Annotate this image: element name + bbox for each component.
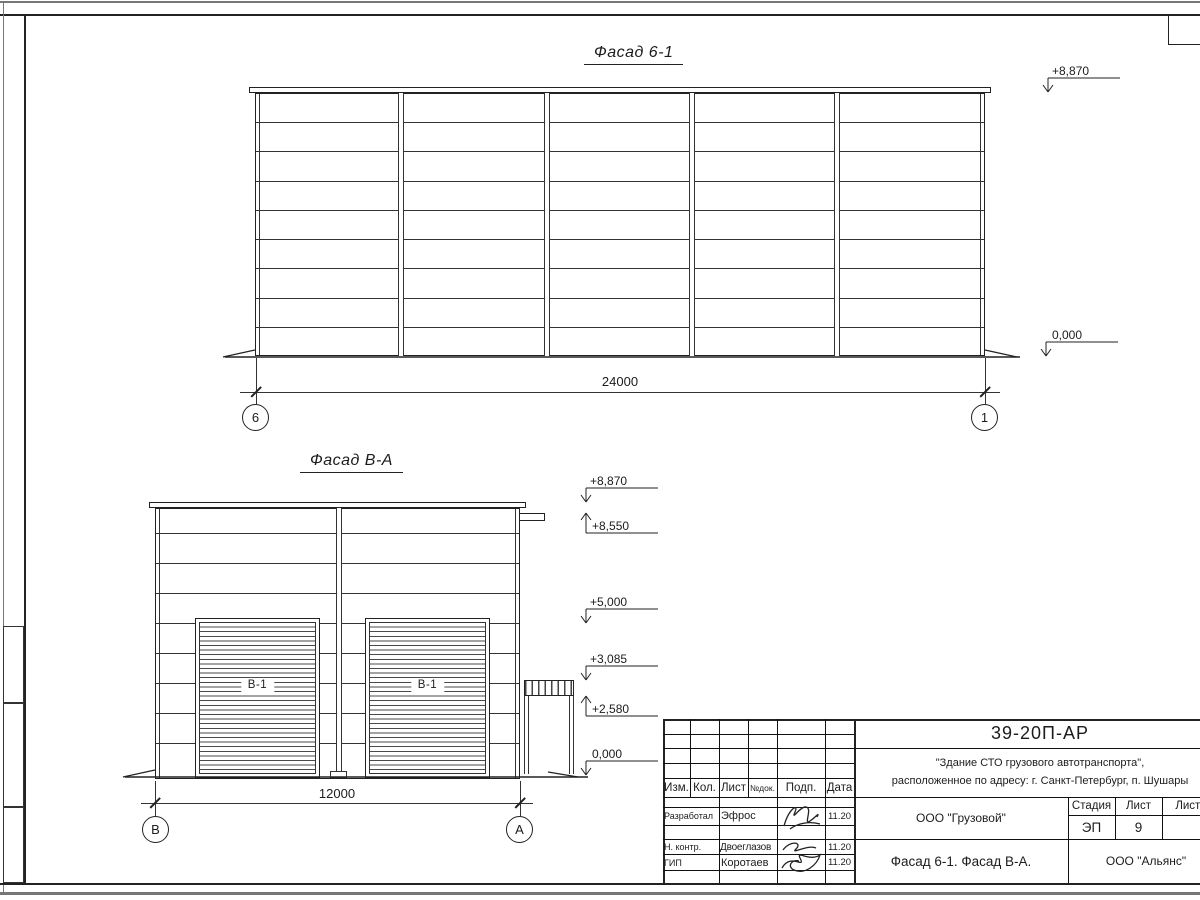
roller-door-slats <box>199 622 316 774</box>
door-label: В-1 <box>241 678 274 692</box>
margin-box-1 <box>3 626 24 703</box>
roller-door-2: В-1 <box>365 618 490 778</box>
level-mark-8550: +8,550 <box>572 511 662 537</box>
panel-line <box>256 239 984 240</box>
sheet-title: Фасад 6-1. Фасад В-А. <box>856 840 1066 882</box>
sheets-label: Листов <box>1163 798 1200 814</box>
axis-bubble-a: А <box>506 816 533 843</box>
porch-post <box>524 696 525 774</box>
mullion <box>689 93 695 356</box>
level-mark-5000: +5,000 <box>572 595 662 625</box>
frame-bottom <box>0 883 1200 885</box>
project-line-1: "Здание СТО грузового автотранспорта", <box>936 755 1145 772</box>
tb-header-ndok: №док. <box>748 779 777 796</box>
facade-top-title: Фасад 6-1 <box>584 44 683 65</box>
role-ncontrol: Н. контр. <box>664 840 719 854</box>
mullion <box>398 93 404 356</box>
project-description: "Здание СТО грузового автотранспорта", р… <box>858 750 1200 795</box>
extension-line <box>985 358 986 404</box>
roller-door-1: В-1 <box>195 618 320 778</box>
level-mark-2580: +2,580 <box>572 694 662 720</box>
sheet-edge-top <box>0 1 1200 3</box>
level-mark-3085: +3,085 <box>572 652 662 682</box>
axis-label: 1 <box>981 410 988 425</box>
company-name: ООО "Альянс" <box>1069 840 1200 882</box>
porch-canopy <box>524 680 574 696</box>
mullion <box>544 93 550 356</box>
dimension-line <box>141 803 533 804</box>
axis-label: А <box>515 822 524 837</box>
facade-top-body <box>255 93 985 356</box>
sheet-label: Лист <box>1116 798 1161 814</box>
tb-header-podp: Подп. <box>777 779 825 796</box>
role-developer: Разработал <box>664 808 719 824</box>
mullion <box>336 508 342 771</box>
tb-header-izm: Изм. <box>663 779 690 796</box>
signature <box>780 799 824 833</box>
facade-top-inner-edge-right <box>980 94 981 355</box>
panel-line <box>256 298 984 299</box>
svg-text:+8,870: +8,870 <box>590 474 627 488</box>
facade-top-parapet-cap <box>249 87 991 93</box>
panel-line <box>256 210 984 211</box>
panel-line <box>256 151 984 152</box>
ground-line-top-facade <box>205 348 1035 364</box>
sheet-edge-bottom <box>0 892 1200 895</box>
level-mark-zero: 0,000 <box>1032 328 1122 358</box>
dimension-text: 24000 <box>560 374 680 389</box>
facade-side-inner-edge-left <box>159 509 160 778</box>
extension-line <box>155 781 156 816</box>
svg-text:+3,085: +3,085 <box>590 652 627 666</box>
dimension-line <box>240 392 1000 393</box>
corner-reference-box <box>1168 16 1200 45</box>
tb-line <box>663 748 1200 749</box>
date-gip: 11.20 <box>825 855 854 870</box>
stage-value: ЭП <box>1069 816 1114 838</box>
roller-door-slats <box>369 622 486 774</box>
axis-bubble-v: В <box>142 816 169 843</box>
facade-side-title: Фасад В-А <box>300 452 403 473</box>
mullion <box>834 93 840 356</box>
extension-line <box>256 358 257 404</box>
svg-text:+5,000: +5,000 <box>590 595 627 609</box>
panel-line <box>256 122 984 123</box>
panel-line <box>256 181 984 182</box>
axis-label: В <box>151 822 160 837</box>
name-developer: Эфрос <box>721 808 776 824</box>
frame-top <box>0 14 1200 16</box>
role-gip: ГИП <box>664 855 719 870</box>
ground-line-side-facade <box>100 768 600 784</box>
facade-top-inner-edge-left <box>259 94 260 355</box>
svg-text:0,000: 0,000 <box>1052 328 1082 342</box>
dimension-text: 12000 <box>277 786 397 801</box>
panel-line <box>256 327 984 328</box>
svg-text:+8,870: +8,870 <box>1052 64 1089 78</box>
door-label: В-1 <box>411 678 444 692</box>
document-code: 39-20П-АР <box>856 721 1200 746</box>
axis-bubble-6: 6 <box>242 404 269 431</box>
date-ncontrol: 11.20 <box>825 840 854 854</box>
axis-bubble-1: 1 <box>971 404 998 431</box>
name-ncontrol: Двоеглазов <box>720 840 777 854</box>
level-mark-zero-side: 0,000 <box>572 747 662 777</box>
porch-post <box>528 696 529 774</box>
svg-text:+2,580: +2,580 <box>592 702 629 716</box>
svg-text:+8,550: +8,550 <box>592 519 629 533</box>
axis-label: 6 <box>252 410 259 425</box>
level-mark-8870: +8,870 <box>572 474 662 504</box>
level-mark-top: +8,870 <box>1034 64 1124 94</box>
facade-side-inner-edge-right <box>515 509 516 778</box>
stage-label: Стадия <box>1069 798 1114 814</box>
drain-pipe <box>519 513 545 521</box>
sheet-number: 9 <box>1116 816 1161 838</box>
project-line-2: расположенное по адресу: г. Санкт-Петерб… <box>892 773 1188 790</box>
frame-left <box>24 14 26 883</box>
tb-header-data: Дата <box>825 779 854 796</box>
client-name: ООО "Грузовой" <box>856 799 1066 837</box>
date-developer: 11.20 <box>825 808 854 824</box>
margin-box-2 <box>3 703 24 807</box>
tb-line <box>719 719 720 883</box>
tb-header-kol: Кол. <box>690 779 719 796</box>
margin-box-3 <box>3 807 24 883</box>
name-gip: Коротаев <box>721 855 776 870</box>
extension-line <box>520 781 521 816</box>
tb-header-list: Лист <box>719 779 748 796</box>
signature <box>777 837 825 877</box>
panel-line <box>256 268 984 269</box>
porch-post <box>569 696 570 774</box>
drawing-sheet: Фасад 6-1 +8,870 0,000 24000 6 <box>0 0 1200 900</box>
svg-text:0,000: 0,000 <box>592 747 622 761</box>
